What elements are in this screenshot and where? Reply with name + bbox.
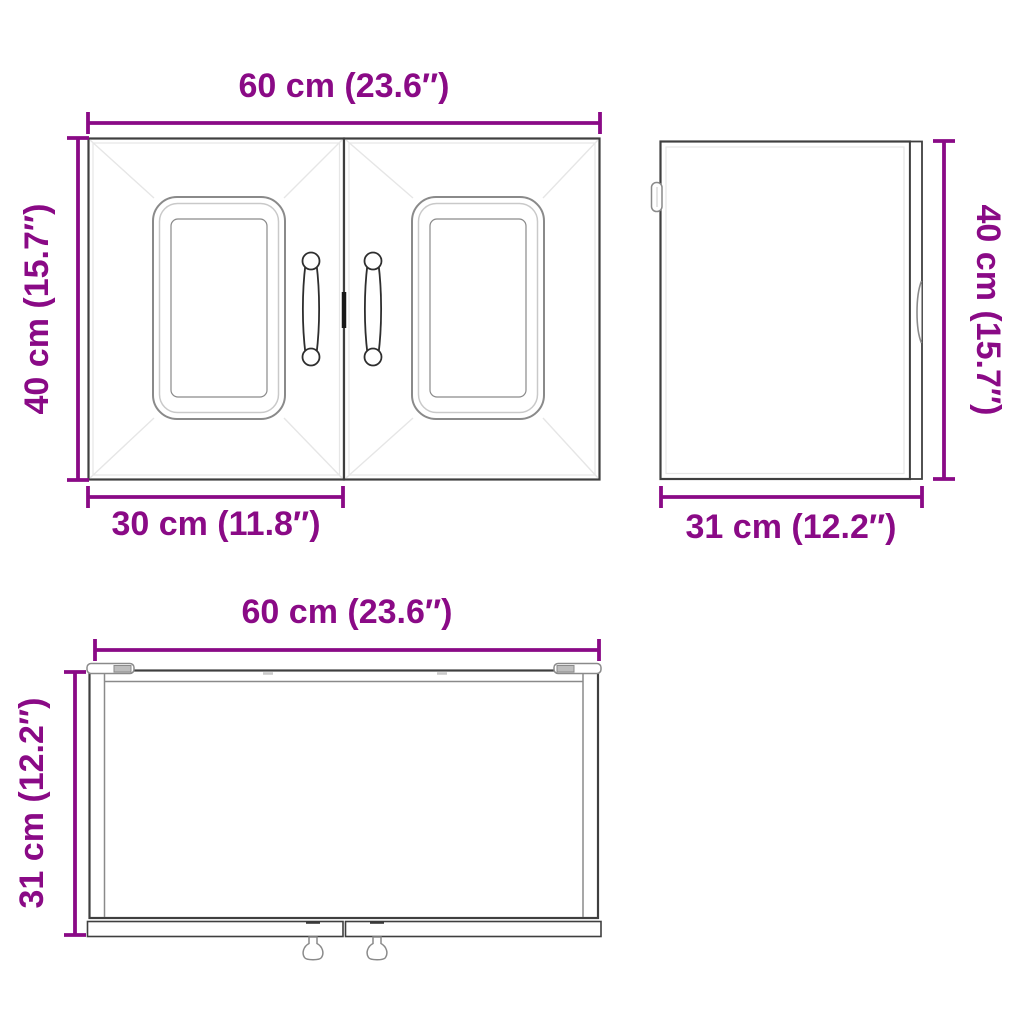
front-right-door xyxy=(344,139,600,480)
top-left-door xyxy=(88,922,344,937)
side-height-label: 40 cm (15.7″) xyxy=(971,205,1005,416)
side-depth-label: 31 cm (12.2″) xyxy=(686,510,897,544)
side-depth-dimension xyxy=(661,486,922,508)
top-left-door-handle xyxy=(303,937,323,960)
top-width-label: 60 cm (23.6″) xyxy=(242,595,453,629)
front-width-dimension xyxy=(88,112,600,134)
left-hinge-plate xyxy=(87,664,134,674)
top-width-dimension xyxy=(95,639,599,661)
top-depth-dimension xyxy=(64,672,86,935)
front-height-label: 40 cm (15.7″) xyxy=(20,204,54,415)
top-carcass xyxy=(90,671,599,919)
top-depth-label: 31 cm (12.2″) xyxy=(15,698,49,909)
side-view xyxy=(652,142,923,480)
front-height-dimension xyxy=(67,138,89,480)
front-door-width-label: 30 cm (11.8″) xyxy=(111,507,320,541)
front-width-label: 60 cm (23.6″) xyxy=(239,69,450,103)
side-height-dimension xyxy=(933,141,955,479)
top-right-door-handle xyxy=(367,937,387,960)
diagram-canvas: 60 cm (23.6″) 40 cm (15.7″) 30 cm (11.8″… xyxy=(0,0,1024,1024)
front-left-door xyxy=(89,139,345,480)
side-carcass xyxy=(661,142,911,480)
top-view xyxy=(87,664,601,960)
right-hinge-plate xyxy=(554,664,601,674)
front-view xyxy=(89,139,600,480)
